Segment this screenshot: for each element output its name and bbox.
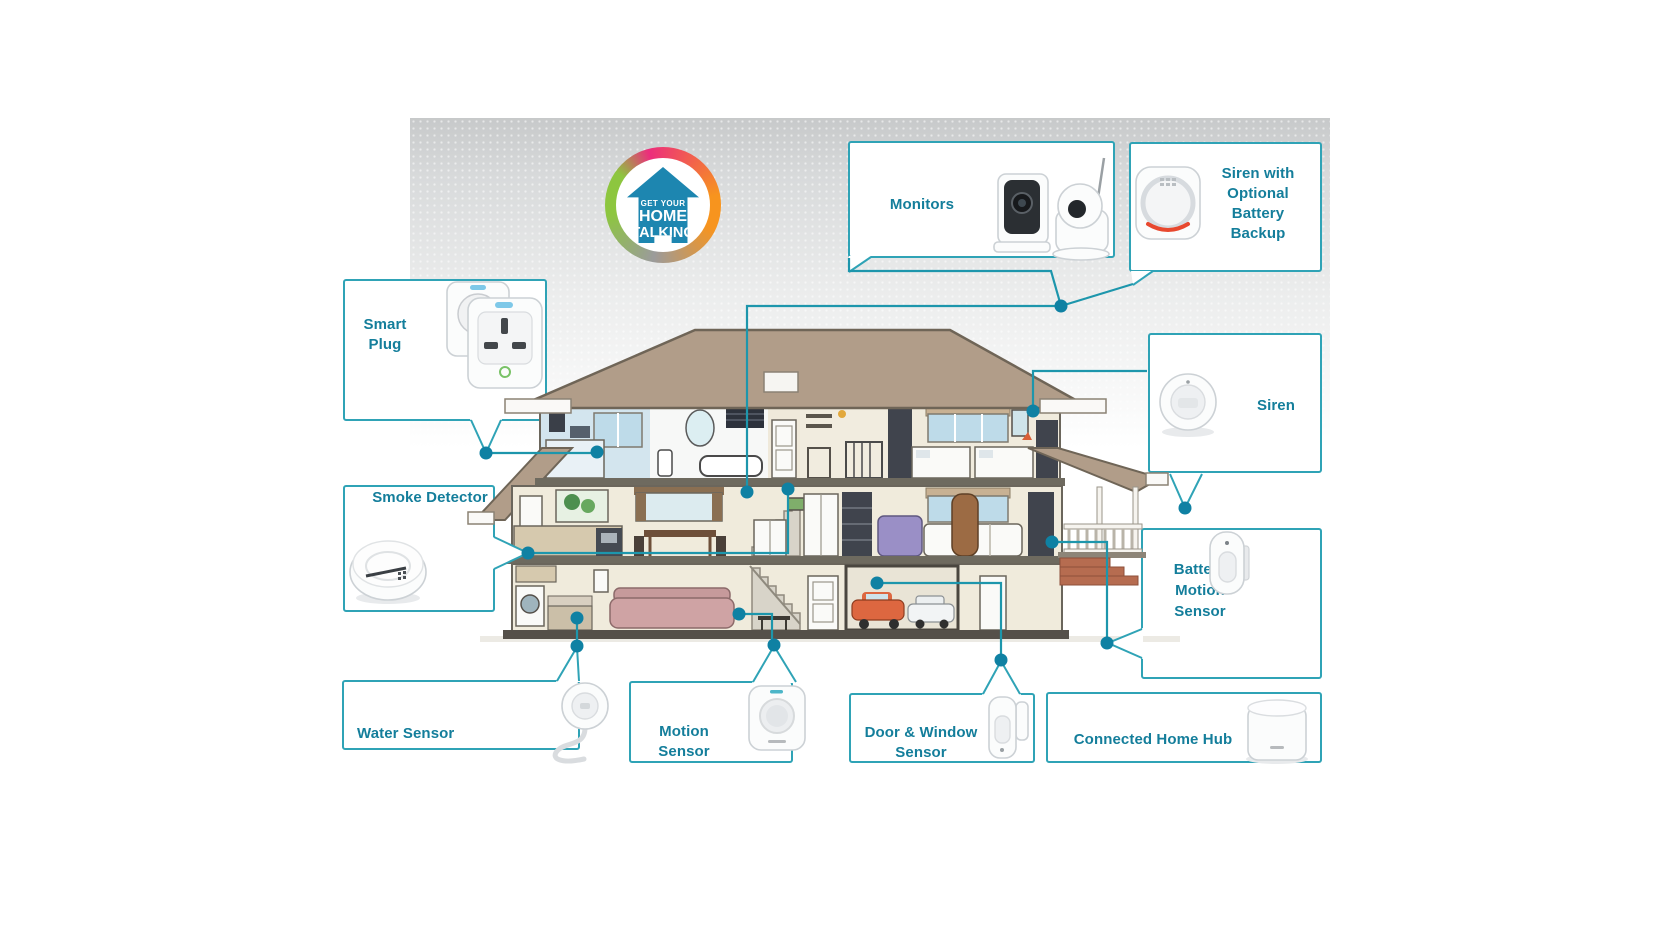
connected-home-hub-label-box (1046, 692, 1322, 763)
connector-dot (871, 577, 884, 590)
connector-dot (1101, 637, 1114, 650)
connector-dot (1046, 536, 1059, 549)
poster-canvas: GET YOUR HOME TALKING Monitors Siren wit… (0, 0, 1664, 936)
connector-dot (741, 486, 754, 499)
porch-steps (1060, 558, 1138, 585)
smoke-detector-label: Smoke Detector (372, 488, 488, 508)
white-car (908, 604, 954, 622)
foundation (503, 630, 1069, 639)
water-sensor-label: Water Sensor (357, 724, 487, 744)
door-window-label: Door & Window Sensor (852, 723, 990, 763)
siren-battery-label: Siren with Optional Battery Backup (1207, 164, 1309, 244)
floor-band-lower (507, 556, 1065, 564)
connector-dot (571, 640, 584, 653)
battery-motion-label: Battery Motion Sensor (1152, 559, 1248, 622)
porch (1058, 487, 1146, 585)
connector-dot (480, 447, 493, 460)
motion-sensor-label: Motion Sensor (636, 722, 732, 762)
connector-dot (733, 608, 746, 621)
connector-dot (782, 483, 795, 496)
ground-shadow (480, 636, 1180, 642)
middle-floor (512, 486, 1062, 558)
get-your-home-talking-logo: GET YOUR HOME TALKING (605, 147, 721, 263)
smart-plug-label: Smart Plug (346, 315, 424, 355)
connector-dot (768, 639, 781, 652)
connector-dot (522, 547, 535, 560)
connected-home-hub-label: Connected Home Hub (1053, 730, 1253, 750)
ground-floor (512, 564, 1062, 632)
porch-roof (1028, 448, 1160, 492)
connector-dot (571, 612, 584, 625)
floor-band-upper (535, 478, 1065, 486)
connector-dot (1179, 502, 1192, 515)
front-door (952, 494, 978, 556)
monitors-label: Monitors (862, 195, 982, 215)
garage (846, 566, 958, 630)
orange-car (852, 600, 904, 620)
connector-dot (995, 654, 1008, 667)
siren-label: Siren (1236, 396, 1316, 416)
